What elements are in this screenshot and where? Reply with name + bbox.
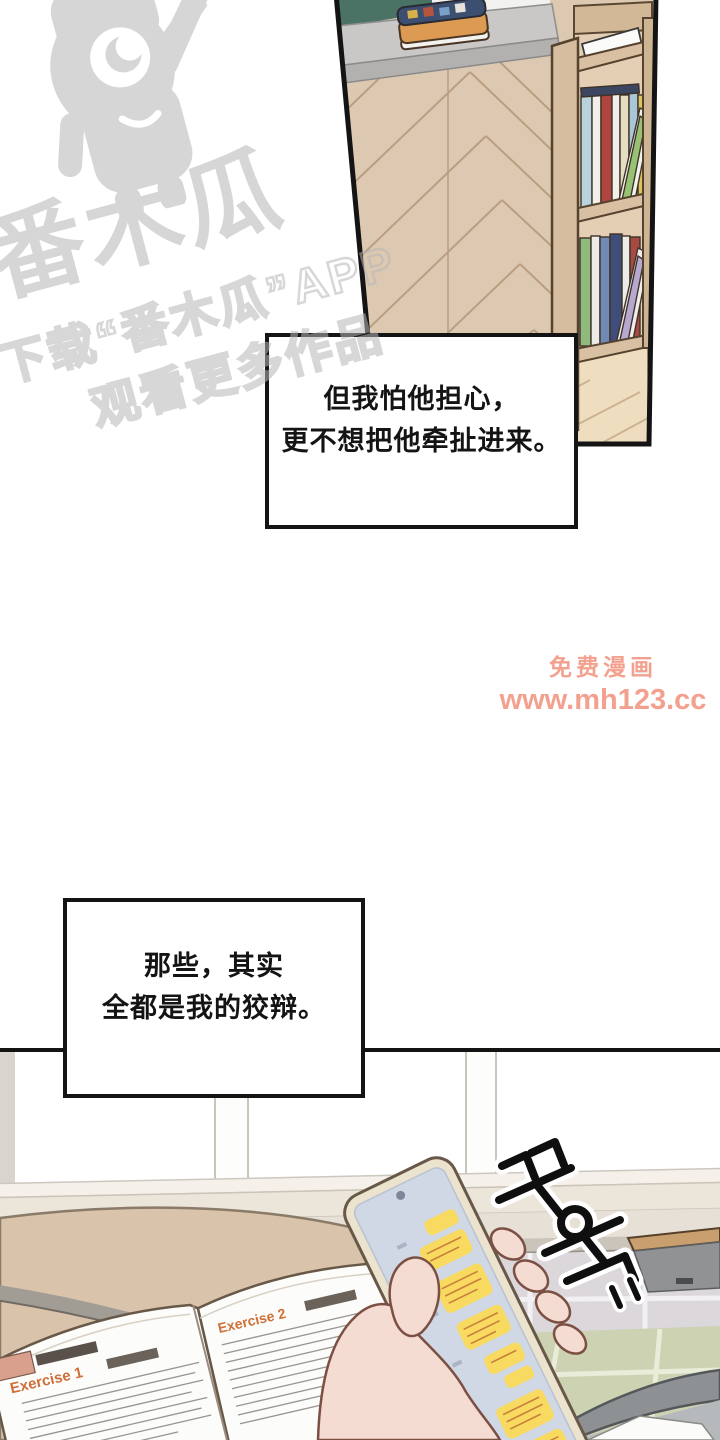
site-watermark-line2: www.mh123.cc: [498, 684, 708, 717]
caption-box-1: 但我怕他担心， 更不想把他牵扯进来。: [265, 333, 578, 529]
panel-desk-scene: Exercise 1 Exercise 2: [0, 1048, 720, 1440]
caption1-line1: 但我怕他担心，: [282, 379, 562, 421]
site-watermark: 免费漫画 www.mh123.cc: [498, 648, 708, 717]
caption2-line1: 那些，其实: [102, 946, 326, 988]
comic-page: Exercise 1 Exercise 2: [0, 0, 720, 1440]
caption2-line2: 全都是我的狡辩。: [102, 988, 326, 1030]
site-watermark-line1: 免费漫画: [498, 648, 708, 682]
caption-box-2: 那些，其实 全都是我的狡辩。: [63, 898, 365, 1098]
books-shelf-bottom: [580, 234, 650, 346]
caption1-line2: 更不想把他牵扯进来。: [282, 421, 562, 463]
books-shelf-middle: [581, 84, 652, 208]
